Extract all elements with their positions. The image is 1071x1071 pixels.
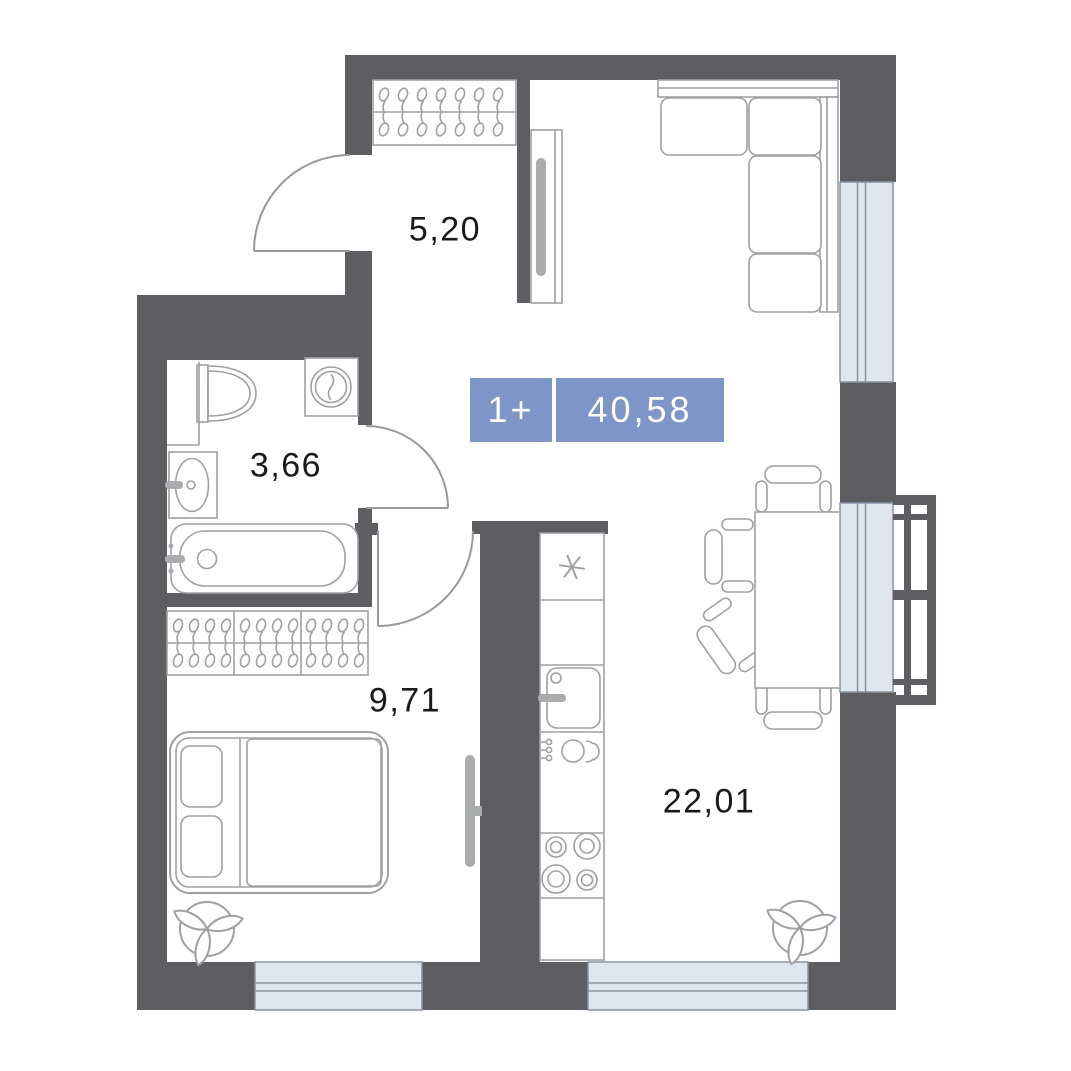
room-label-living-kitchen: 22,01 xyxy=(663,783,756,822)
corner-sofa-icon xyxy=(658,80,838,312)
floor-plan-drawing xyxy=(0,0,1071,1071)
living-room-furniture xyxy=(658,80,840,966)
bathtub-icon xyxy=(165,524,358,593)
room-label-bedroom: 9,71 xyxy=(369,682,441,721)
toilet-icon xyxy=(167,362,256,445)
washing-machine-icon xyxy=(305,358,358,416)
plant-icon xyxy=(764,901,837,966)
chair-icon xyxy=(756,682,831,729)
window-icon xyxy=(588,962,808,1010)
window-icon xyxy=(840,182,893,382)
rooms-count-badge: 1+ xyxy=(470,378,552,442)
window-icon xyxy=(255,962,422,1010)
room-label-bathroom: 3,66 xyxy=(250,447,322,486)
room-label-hallway: 5,20 xyxy=(409,211,481,250)
floor-plan-canvas: 5,20 3,66 9,71 22,01 1+ 40,58 xyxy=(0,0,1071,1071)
bed-icon xyxy=(170,732,388,893)
window-icon xyxy=(840,503,893,692)
kitchen-unit xyxy=(538,533,604,960)
door-swing-icon xyxy=(254,155,350,251)
tv-icon xyxy=(465,755,482,867)
dining-set xyxy=(688,466,840,729)
hallway-furniture xyxy=(373,80,562,303)
kitchen-sink-icon xyxy=(538,668,600,728)
unit-badge: 1+ 40,58 xyxy=(470,378,724,442)
bathroom-sink-icon xyxy=(165,452,217,518)
bedroom-furniture xyxy=(167,611,482,967)
hanger-rail-icon xyxy=(373,80,516,145)
total-area-badge: 40,58 xyxy=(556,378,724,442)
door-swing-icon xyxy=(378,531,473,626)
chair-icon xyxy=(756,466,831,512)
chair-icon xyxy=(705,519,753,592)
balcony-railing-icon xyxy=(893,495,936,705)
plant-icon xyxy=(171,902,244,967)
door-swing-icon xyxy=(366,426,448,508)
hanger-rail-icon xyxy=(167,611,368,675)
tall-cabinet-icon xyxy=(531,130,562,303)
dining-table-icon xyxy=(755,512,840,688)
